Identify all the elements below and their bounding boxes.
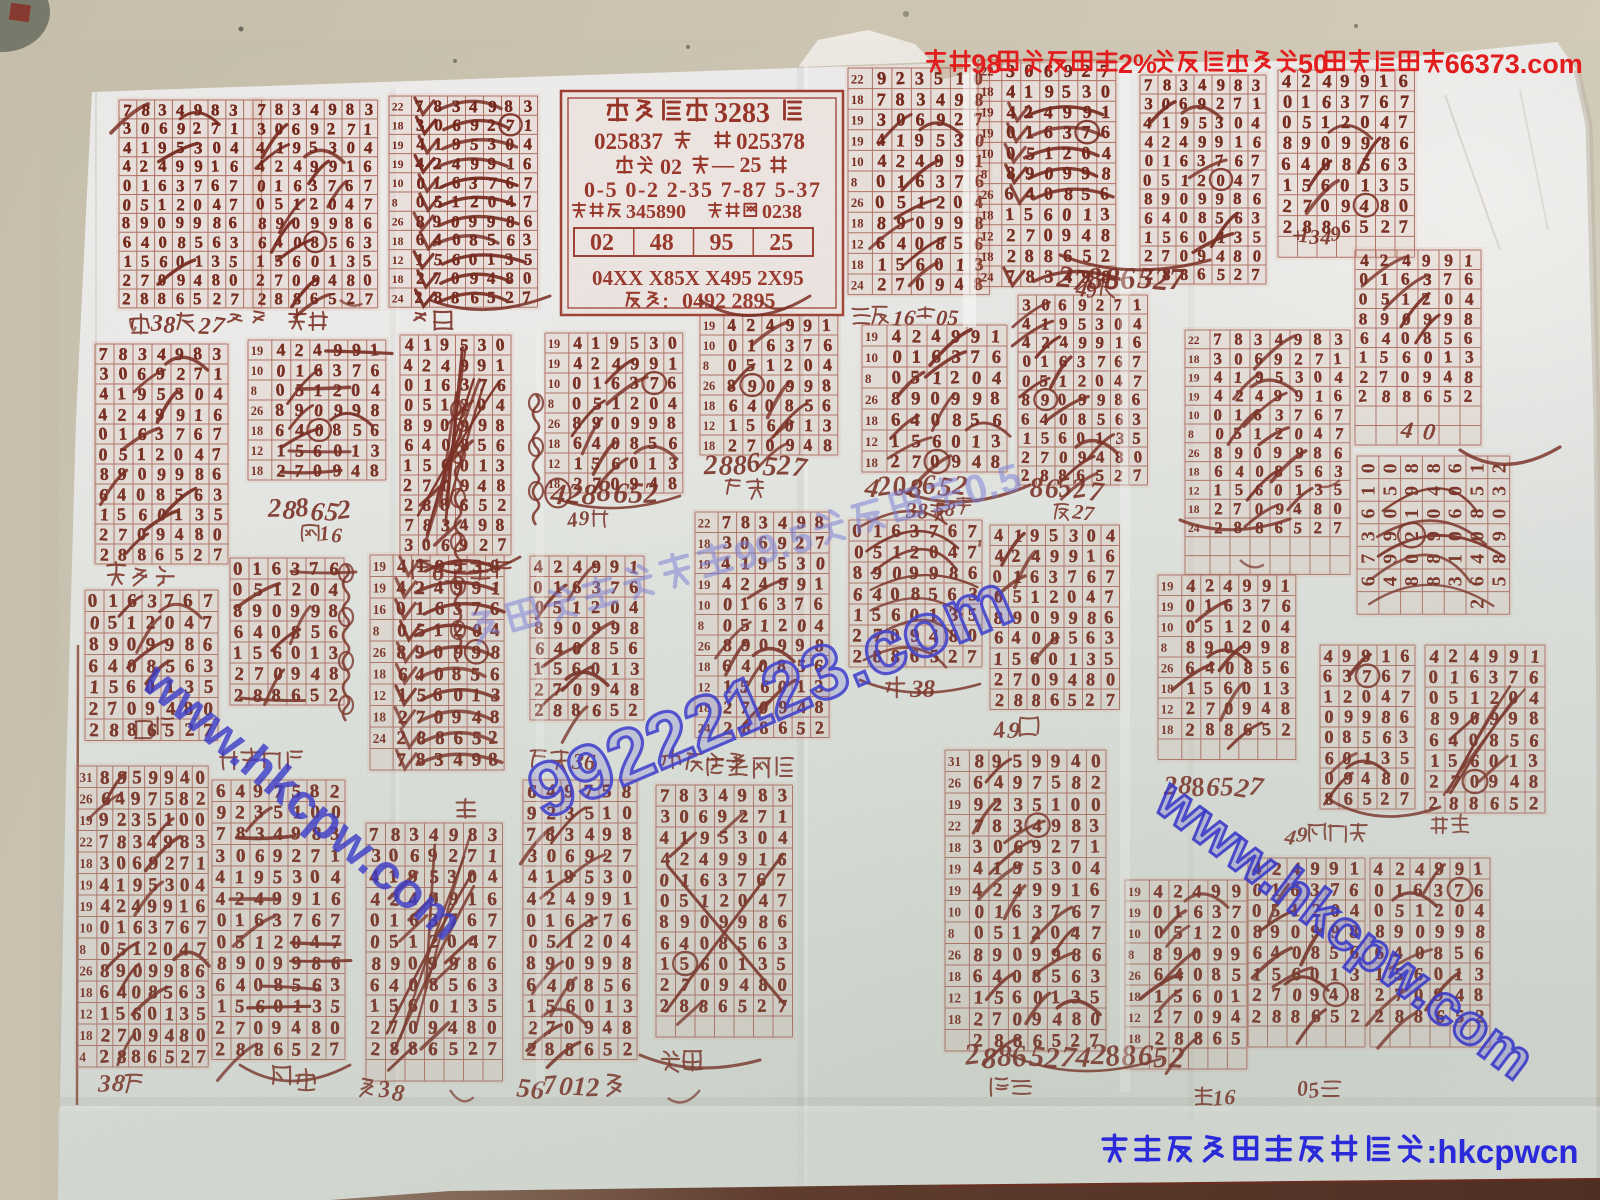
svg-text:50: 50 xyxy=(1298,49,1328,79)
svg-text:98: 98 xyxy=(971,49,1001,79)
svg-text:2%: 2% xyxy=(1118,49,1157,79)
svg-text::hkcpwcn: :hkcpwcn xyxy=(1426,1133,1578,1170)
svg-text:66373.com: 66373.com xyxy=(1445,49,1583,79)
